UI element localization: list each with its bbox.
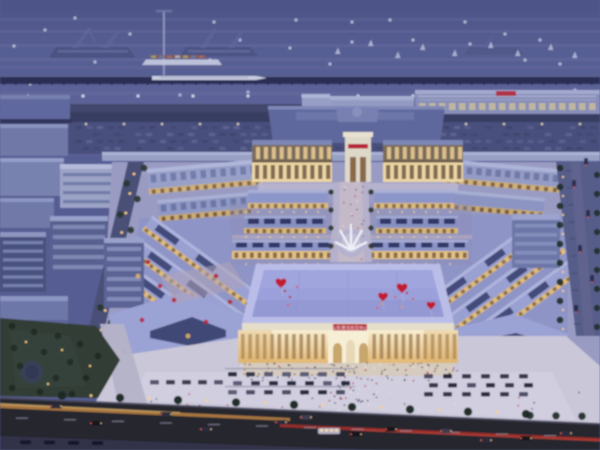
svg-text:山东港湾商贸中心: 山东港湾商贸中心: [332, 324, 369, 331]
